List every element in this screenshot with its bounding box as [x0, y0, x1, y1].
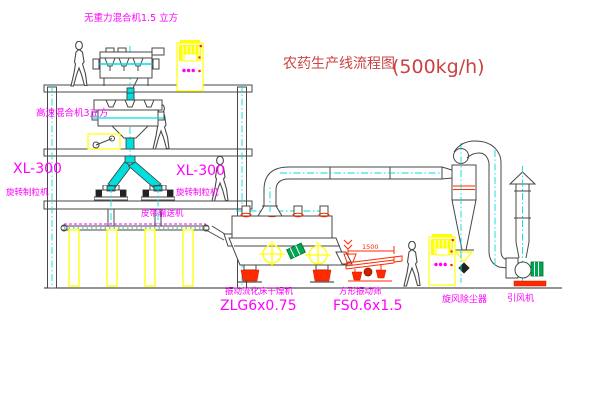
- belt-conveyor: [61, 224, 240, 286]
- sieve-dimension-text: 1500: [362, 243, 379, 251]
- floor-slab-top: [44, 85, 252, 92]
- label-sieve-name: 方形振动筛: [339, 286, 382, 297]
- person-near-sieve: [404, 241, 420, 286]
- control-cabinet-dryer: [429, 234, 455, 285]
- fan-motor: [531, 262, 543, 276]
- granulator-discharge-chutes: [108, 186, 161, 226]
- rotary-valve: [458, 262, 469, 273]
- fan-base: [514, 281, 546, 286]
- cyclone-discharge-funnel: [456, 252, 472, 262]
- label-sieve-model: FS0.6x1.5: [333, 298, 403, 314]
- label-belt-conveyor: 皮带输送机: [141, 208, 184, 219]
- fan-scroll: [515, 262, 531, 278]
- sieve-motor: [364, 268, 372, 276]
- page-title: 农药生产线流程图: [283, 56, 395, 72]
- label-granulator-left-name: 旋转制粒机: [6, 187, 49, 198]
- label-high-speed-mixer: 高速混合机3立方: [36, 107, 109, 119]
- label-fan: 引风机: [507, 292, 534, 304]
- induced-draft-fan: [506, 258, 546, 286]
- label-gravity-free-mixer: 无重力混合机1.5 立方: [84, 12, 178, 24]
- label-granulator-center-name: 旋转制粒机: [176, 187, 219, 198]
- dryer-support-feet: [238, 265, 334, 282]
- control-cabinet-top: [177, 40, 203, 91]
- floor-slab-middle: [44, 149, 252, 156]
- label-cyclone: 旋风除尘器: [442, 293, 487, 305]
- label-granulator-center-model: XL-300: [176, 163, 225, 179]
- fluid-bed-dryer: [229, 206, 352, 282]
- label-granulator-left-model: XL-300: [13, 161, 62, 177]
- floor-slab-lower: [44, 201, 252, 209]
- label-dryer-model: ZLG6x0.75: [220, 298, 297, 314]
- y-distribution-chute: [107, 156, 162, 191]
- sieve-outlet: [394, 256, 402, 262]
- person-top-floor: [71, 41, 87, 86]
- process-flow-diagram: 无重力混合机1.5 立方 高速混合机3立方 XL-300 旋转制粒机 XL-30…: [0, 0, 600, 403]
- feed-arrows: [344, 240, 352, 249]
- exhaust-duct: [258, 167, 450, 216]
- page-title-capacity: (500kg/h): [392, 56, 485, 78]
- high-speed-mixer: [88, 93, 164, 149]
- mixer2-discharge: [126, 138, 134, 149]
- label-dryer-name: 振动流化床干燥机: [225, 286, 294, 297]
- cad-drawing-canvas: 无重力混合机1.5 立方 高速混合机3立方 XL-300 旋转制粒机 XL-30…: [0, 0, 600, 403]
